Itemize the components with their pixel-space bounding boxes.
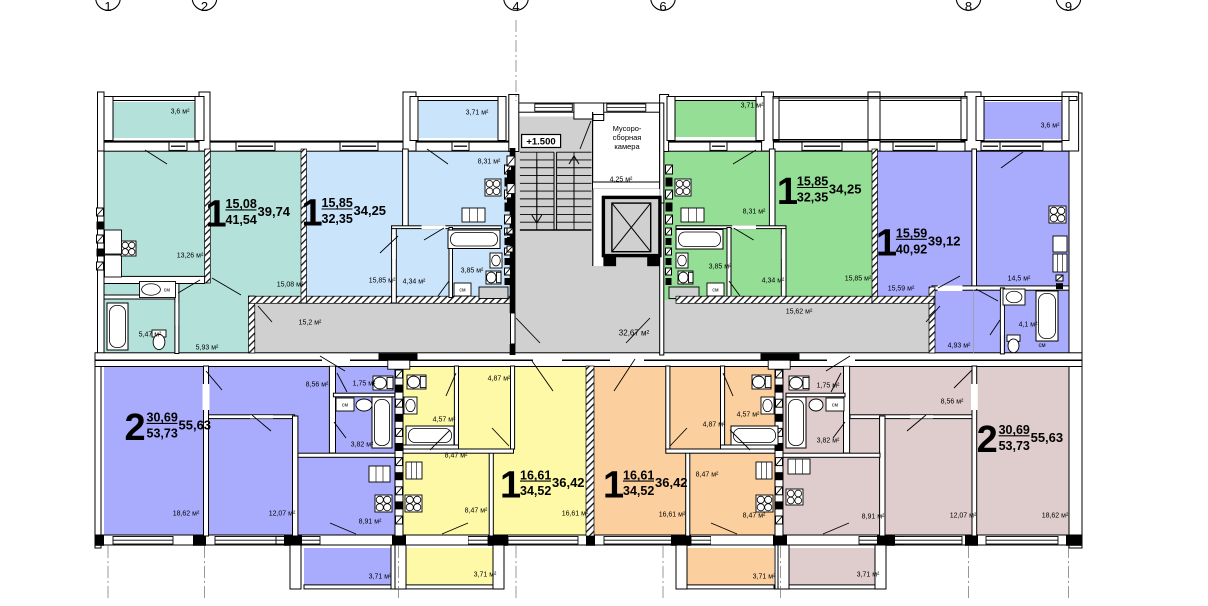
svg-text:8,47 м²: 8,47 м² xyxy=(743,513,766,520)
svg-text:15,2 м²: 15,2 м² xyxy=(299,320,322,327)
svg-text:12,07 м²: 12,07 м² xyxy=(950,513,977,520)
svg-text:16,61 м²: 16,61 м² xyxy=(659,512,686,519)
svg-text:15,85: 15,85 xyxy=(322,196,353,210)
svg-text:15,85 м²: 15,85 м² xyxy=(369,278,396,285)
svg-text:камера: камера xyxy=(614,142,640,151)
svg-text:3,71 м²: 3,71 м² xyxy=(753,574,776,581)
svg-text:5,93 м²: 5,93 м² xyxy=(196,345,219,352)
svg-text:4,57 м²: 4,57 м² xyxy=(433,417,456,424)
svg-text:39,12: 39,12 xyxy=(928,233,961,248)
svg-text:4: 4 xyxy=(512,0,519,14)
svg-text:1: 1 xyxy=(206,193,227,235)
svg-text:см: см xyxy=(164,288,171,294)
svg-text:8,47 м²: 8,47 м² xyxy=(445,453,468,460)
svg-text:3,71 м²: 3,71 м² xyxy=(741,103,764,110)
svg-text:4,25 м²: 4,25 м² xyxy=(610,177,633,184)
svg-text:39,74: 39,74 xyxy=(258,204,291,219)
svg-text:55,63: 55,63 xyxy=(1031,430,1064,445)
svg-text:5,47 м²: 5,47 м² xyxy=(139,332,162,339)
svg-text:15,62 м²: 15,62 м² xyxy=(786,309,813,316)
svg-text:3,6 м²: 3,6 м² xyxy=(1041,123,1060,130)
svg-text:53,73: 53,73 xyxy=(147,426,178,440)
svg-text:41,54: 41,54 xyxy=(226,213,257,227)
svg-text:8,91 м²: 8,91 м² xyxy=(862,514,885,521)
svg-text:4,93 м²: 4,93 м² xyxy=(948,343,971,350)
svg-text:18,62 м²: 18,62 м² xyxy=(173,511,200,518)
svg-text:+1.500: +1.500 xyxy=(526,137,555,148)
svg-text:3,85 м²: 3,85 м² xyxy=(461,268,484,275)
svg-text:1: 1 xyxy=(104,0,111,14)
svg-text:16,61 м²: 16,61 м² xyxy=(562,511,589,518)
svg-text:3,71 м²: 3,71 м² xyxy=(369,574,392,581)
svg-text:36,42: 36,42 xyxy=(552,475,585,490)
svg-text:3,82 м²: 3,82 м² xyxy=(351,442,374,449)
svg-text:53,73: 53,73 xyxy=(999,439,1030,453)
svg-text:34,25: 34,25 xyxy=(354,203,387,218)
svg-text:9: 9 xyxy=(1065,0,1072,14)
svg-text:Мусоро-: Мусоро- xyxy=(613,124,642,133)
svg-text:4,57 м²: 4,57 м² xyxy=(737,412,760,419)
svg-text:3,71 м²: 3,71 м² xyxy=(857,572,880,579)
svg-text:16,61: 16,61 xyxy=(520,468,551,482)
svg-text:4,87 м²: 4,87 м² xyxy=(703,422,726,429)
svg-text:6: 6 xyxy=(659,0,666,14)
svg-text:3,82 м²: 3,82 м² xyxy=(817,438,840,445)
svg-text:2: 2 xyxy=(977,419,998,461)
svg-text:15,85 м²: 15,85 м² xyxy=(845,276,872,283)
svg-text:36,42: 36,42 xyxy=(655,475,688,490)
svg-text:3,85 м²: 3,85 м² xyxy=(709,264,732,271)
svg-text:см: см xyxy=(459,288,466,294)
svg-text:см: см xyxy=(342,403,349,409)
svg-text:2: 2 xyxy=(125,407,146,449)
svg-text:40,92: 40,92 xyxy=(896,242,927,256)
svg-text:1: 1 xyxy=(500,465,521,507)
svg-text:1,75 м²: 1,75 м² xyxy=(817,383,840,390)
svg-text:30,69: 30,69 xyxy=(147,411,178,425)
svg-text:32,35: 32,35 xyxy=(322,212,353,226)
svg-text:8,47 м²: 8,47 м² xyxy=(465,508,488,515)
svg-text:15,08 м²: 15,08 м² xyxy=(277,282,304,289)
svg-text:4,87 м²: 4,87 м² xyxy=(488,376,511,383)
svg-text:15,59 м²: 15,59 м² xyxy=(888,286,915,293)
svg-text:8,31 м²: 8,31 м² xyxy=(478,159,501,166)
svg-text:4,34 м²: 4,34 м² xyxy=(762,278,785,285)
svg-text:34,52: 34,52 xyxy=(520,484,551,498)
svg-text:15,85: 15,85 xyxy=(797,175,828,189)
svg-text:8,56 м²: 8,56 м² xyxy=(306,382,329,389)
svg-text:1: 1 xyxy=(876,223,897,265)
svg-text:16,61: 16,61 xyxy=(623,468,654,482)
svg-text:сборная: сборная xyxy=(613,133,642,142)
svg-text:15,08: 15,08 xyxy=(226,197,257,211)
svg-text:см: см xyxy=(832,403,839,409)
svg-text:2: 2 xyxy=(201,0,208,14)
svg-text:32,67 м²: 32,67 м² xyxy=(619,329,650,338)
svg-text:1: 1 xyxy=(603,465,624,507)
svg-text:1: 1 xyxy=(302,192,323,234)
svg-text:4,1 м²: 4,1 м² xyxy=(1019,322,1038,329)
svg-text:8,47 м²: 8,47 м² xyxy=(696,472,719,479)
svg-text:14,5 м²: 14,5 м² xyxy=(1008,276,1031,283)
svg-text:34,52: 34,52 xyxy=(623,484,654,498)
svg-text:см: см xyxy=(712,288,719,294)
svg-text:32,35: 32,35 xyxy=(797,191,828,205)
svg-text:55,63: 55,63 xyxy=(179,417,212,432)
svg-text:1,75 м²: 1,75 м² xyxy=(353,381,376,388)
svg-text:8,91 м²: 8,91 м² xyxy=(359,519,382,526)
svg-text:4,34 м²: 4,34 м² xyxy=(403,279,426,286)
svg-text:8,56 м²: 8,56 м² xyxy=(941,399,964,406)
svg-text:см: см xyxy=(1038,343,1045,349)
svg-text:3,6 м²: 3,6 м² xyxy=(171,109,190,116)
svg-text:18,62 м²: 18,62 м² xyxy=(1042,513,1069,520)
svg-text:3,71 м²: 3,71 м² xyxy=(466,110,489,117)
svg-text:13,26 м²: 13,26 м² xyxy=(177,253,204,260)
svg-text:30,69: 30,69 xyxy=(999,423,1030,437)
svg-text:8,31 м²: 8,31 м² xyxy=(743,209,766,216)
svg-text:8: 8 xyxy=(965,0,972,14)
svg-text:3,71 м²: 3,71 м² xyxy=(474,572,497,579)
svg-text:1: 1 xyxy=(777,171,798,213)
svg-text:12,07 м²: 12,07 м² xyxy=(269,511,296,518)
svg-text:34,25: 34,25 xyxy=(829,182,862,197)
svg-text:15,59: 15,59 xyxy=(896,227,927,241)
